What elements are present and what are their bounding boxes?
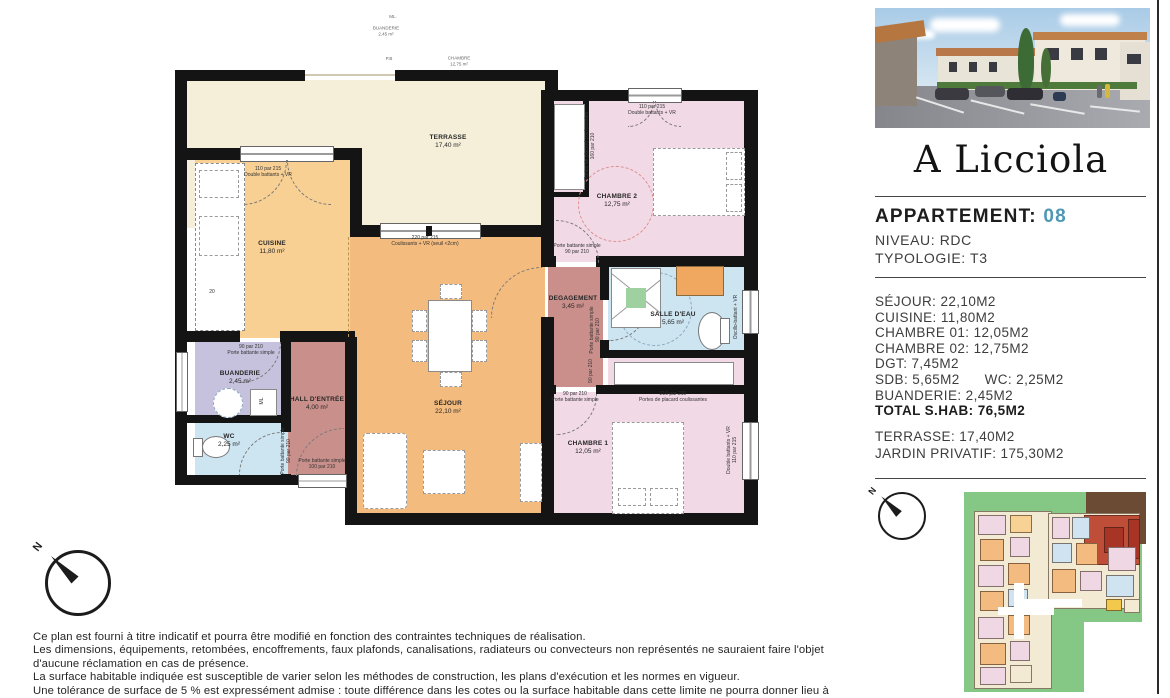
toilet-tank (720, 318, 730, 344)
site-plan-block (1010, 515, 1032, 533)
ann-placard-chambre-1: 210 par 210Portes de placard coulissante… (639, 391, 707, 404)
wall (280, 331, 355, 342)
floor-plan: N TERRASSE17,40 m²CUISINE11,80 m²SÉJOUR2… (0, 0, 860, 694)
site-plan-block (1022, 599, 1082, 607)
label-terrasse: TERRASSE17,40 m² (430, 134, 467, 150)
foreground-building (875, 36, 917, 106)
site-plan-block (1052, 569, 1076, 593)
surface-line: SDB: 5,65M2 WC: 2,25M2 (875, 372, 1064, 388)
car-icon (1007, 88, 1043, 100)
ann-cuisine-dim: 20 (209, 289, 215, 295)
site-plan-block (1080, 571, 1102, 591)
site-plan-block (1106, 575, 1134, 597)
wall (395, 70, 558, 81)
disclaimer-text: Ce plan est fourni à titre indicatif et … (33, 631, 829, 698)
motorbike-icon (1053, 92, 1066, 101)
apartment-title: APPARTEMENT: 08 (875, 206, 1067, 228)
chair-icon (440, 284, 462, 299)
ann-fenetre-chambre-1: Double battants + VR110 par 215 (726, 426, 739, 474)
pillow-icon (618, 488, 646, 506)
ann-porte-buanderie: 90 par 210Porte battante simple (227, 344, 274, 357)
ann-dgt-dim: 90 par 210 (588, 359, 594, 383)
washing-machine-icon (213, 388, 243, 418)
chair-icon (440, 372, 462, 387)
window-chambre-1 (742, 422, 759, 480)
surface-line: BUANDERIE: 2,45M2 (875, 388, 1064, 404)
pillow-icon (726, 184, 742, 212)
site-plan-block (1106, 599, 1122, 611)
apartment-number: 08 (1043, 206, 1067, 227)
surface-line: CHAMBRE 02: 12,75M2 (875, 341, 1064, 357)
hob-icon (199, 216, 239, 256)
label-chambre-2: CHAMBRE 212,75 m² (597, 193, 637, 209)
chair-icon (472, 310, 487, 332)
ann-porte-entree: Porte battante simple100 par 210 (298, 458, 345, 471)
toilet-tank (193, 438, 203, 457)
total-surface: TOTAL S.HAB: 76,5M2 (875, 403, 1025, 418)
wall (477, 225, 545, 237)
wall (350, 148, 362, 237)
label-buanderie: BUANDERIE2,45 m² (220, 370, 260, 386)
ann-placard-chambre-2: Portes de placard coulissantes160 par 21… (584, 112, 597, 180)
apartment-label: APPARTEMENT: (875, 206, 1037, 227)
coffee-table-icon (423, 450, 465, 494)
site-plan-block (998, 607, 1054, 615)
car-icon (975, 86, 1005, 97)
wall (175, 70, 305, 81)
tree-icon (1018, 28, 1034, 90)
ann-porte-chambre-2: Porte battante simple90 par 210 (553, 243, 600, 256)
site-plan-block (1052, 517, 1070, 539)
building-photo (875, 8, 1150, 128)
wall (175, 70, 187, 485)
surface-line: CHAMBRE 01: 12,05M2 (875, 325, 1064, 341)
site-plan-block (1124, 599, 1140, 613)
site-plan-block (1010, 665, 1032, 683)
chair-icon (412, 340, 427, 362)
building-tower (1120, 42, 1150, 100)
ann-fenetre-chambre-2: 110 par 215Double battants + VR (628, 104, 676, 117)
label-cuisine: CUISINE11,80 m² (258, 240, 286, 256)
site-plan-block (980, 643, 1006, 665)
ann-faint-buanderie: BUANDERIE2,45 m² (373, 25, 399, 36)
divider (875, 478, 1146, 479)
wall (541, 256, 556, 267)
site-plan-block (1052, 543, 1072, 563)
wall (362, 225, 382, 237)
site-plan-block (1010, 537, 1030, 557)
wall (187, 148, 242, 160)
ann-faint-pb: P.B (386, 56, 393, 62)
surface-line: JARDIN PRIVATIF: 175,30M2 (875, 446, 1064, 463)
panel-right-border (1157, 0, 1159, 694)
closet-sliding-chambre-1 (614, 362, 734, 385)
site-plan-block (1010, 641, 1030, 661)
ann-baie-sejour: 220 par 215Coulissants + VR (seuil <2cm) (391, 235, 458, 248)
surface-list: SÉJOUR: 22,10M2 CUISINE: 11,80M2 CHAMBRE… (875, 294, 1064, 403)
ann-faint-ml: ML. (389, 14, 397, 20)
wall (600, 262, 609, 300)
person-icon (1105, 84, 1110, 98)
ann-porte-wc: Porte battante simple90 par 210 (280, 427, 293, 474)
disclaimer-line: Les dimensions, équipements, retombées, … (33, 644, 829, 657)
disclaimer-line: d'aucune réclamation en cas de présence. (33, 658, 829, 671)
project-logo: A Licciola (875, 130, 1147, 188)
pillow-icon (726, 152, 742, 180)
terrace-edge (305, 74, 395, 76)
ann-porte-chambre-1: 90 par 210Porte battante simple (551, 391, 598, 404)
open-boundary (348, 237, 349, 337)
site-plan-map (958, 487, 1148, 694)
site-plan-block (1008, 563, 1030, 585)
tree-icon (1041, 48, 1051, 88)
window-salle-deau (742, 290, 759, 334)
ann-ml-box: ML (259, 398, 265, 405)
surface-line: SÉJOUR: 22,10M2 (875, 294, 1064, 310)
surface-line: CUISINE: 11,80M2 (875, 310, 1064, 326)
sink-icon (199, 170, 239, 198)
ann-faint-chambre: CHAMBRE12,75 m² (448, 55, 471, 66)
divider (875, 196, 1146, 197)
niveau-line: NIVEAU: RDC (875, 232, 972, 248)
wall (175, 475, 298, 485)
label-wc: WC2,25 m² (218, 433, 240, 449)
dining-table-icon (428, 300, 472, 372)
exterior-surfaces: TERRASSE: 17,40M2 JARDIN PRIVATIF: 175,3… (875, 429, 1064, 462)
site-plan-block (978, 515, 1006, 535)
label-salle-deau: SALLE D'EAU5,65 m² (650, 311, 695, 327)
wall (600, 350, 758, 358)
wall (350, 513, 554, 525)
site-plan-block (978, 617, 1004, 639)
site-plan-block (980, 667, 1006, 685)
sofa-icon (363, 433, 407, 509)
closet-chambre-2 (554, 104, 585, 190)
wall (175, 331, 240, 342)
person-icon (1097, 85, 1102, 98)
label-hall-entree: HALL D'ENTRÉE4,00 m² (290, 396, 344, 412)
label-sejour: SÉJOUR22,10 m² (434, 400, 462, 416)
tv-unit-icon (520, 443, 542, 502)
chair-icon (412, 310, 427, 332)
pillow-icon (650, 488, 678, 506)
wall (541, 317, 554, 525)
site-plan-block (980, 539, 1004, 561)
chair-icon (472, 340, 487, 362)
typologie-line: TYPOLOGIE: T3 (875, 250, 988, 266)
site-plan-block (1108, 547, 1136, 571)
wall (281, 337, 291, 432)
door-entree (298, 474, 347, 488)
window-buanderie (176, 352, 188, 412)
ann-fenetre-salle-deau: Oscillo-battant + VR (733, 295, 739, 340)
car-icon (935, 88, 969, 100)
site-plan-block (1072, 517, 1090, 539)
disclaimer-line: La surface habitable indiquée est suscep… (33, 671, 829, 684)
ann-porte-salle-deau: Porte battante simple90 par 210 (589, 306, 602, 353)
vanity-icon (676, 266, 724, 296)
disclaimer-line: Une tolérance de surface de 5 % est expr… (33, 685, 829, 698)
label-chambre-1: CHAMBRE 112,05 m² (568, 440, 608, 456)
wall (345, 337, 357, 525)
surface-line: TERRASSE: 17,40M2 (875, 429, 1064, 446)
ann-fenetre-cuisine: 110 par 215Double battants + VR (244, 166, 292, 179)
site-plan-block (1076, 543, 1098, 565)
roof (1033, 32, 1147, 40)
disclaimer-line: Ce plan est fourni à titre indicatif et … (33, 631, 829, 644)
wall (541, 513, 758, 525)
surface-line: DGT: 7,45M2 (875, 356, 1064, 372)
site-plan-block (978, 565, 1004, 587)
divider (875, 277, 1146, 278)
